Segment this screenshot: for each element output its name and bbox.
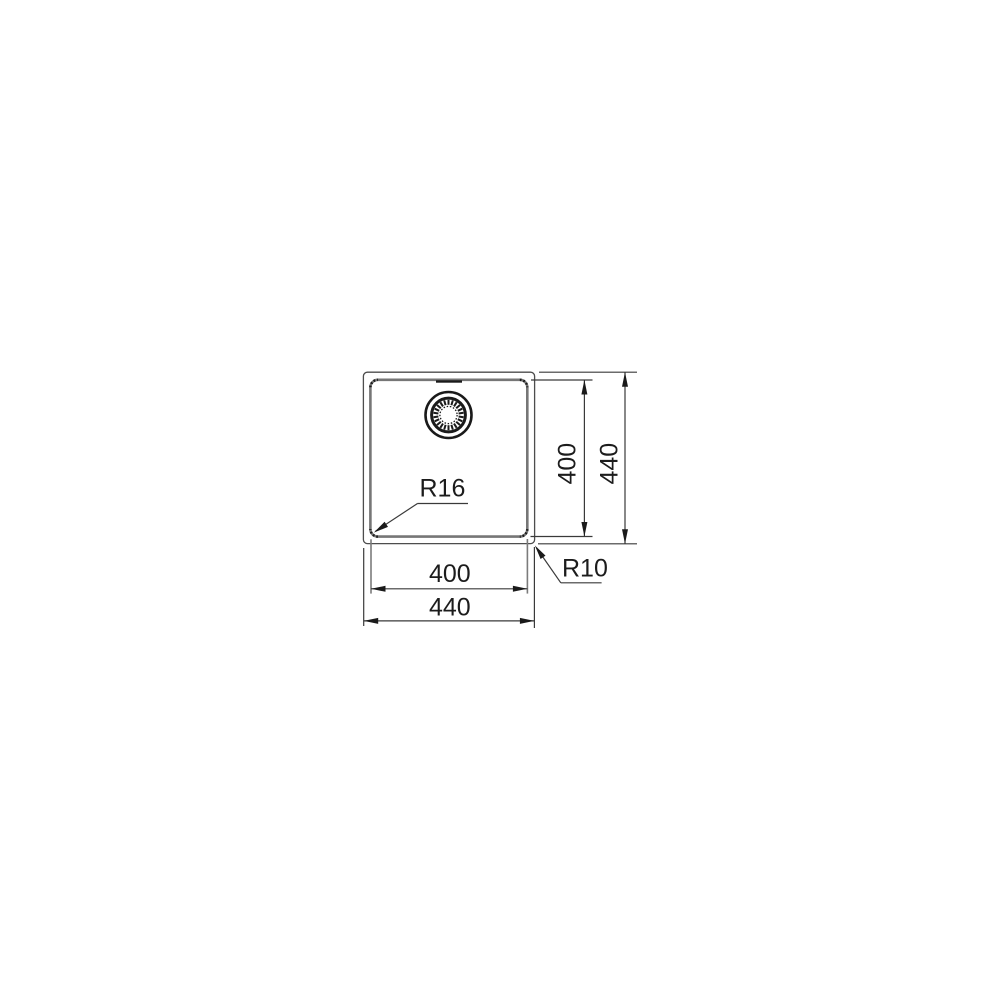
svg-text:400: 400 [429, 560, 471, 588]
svg-text:440: 440 [429, 594, 471, 622]
svg-text:440: 440 [596, 443, 624, 485]
svg-text:400: 400 [554, 443, 582, 485]
svg-text:R10: R10 [562, 554, 608, 582]
svg-text:R16: R16 [420, 475, 466, 503]
